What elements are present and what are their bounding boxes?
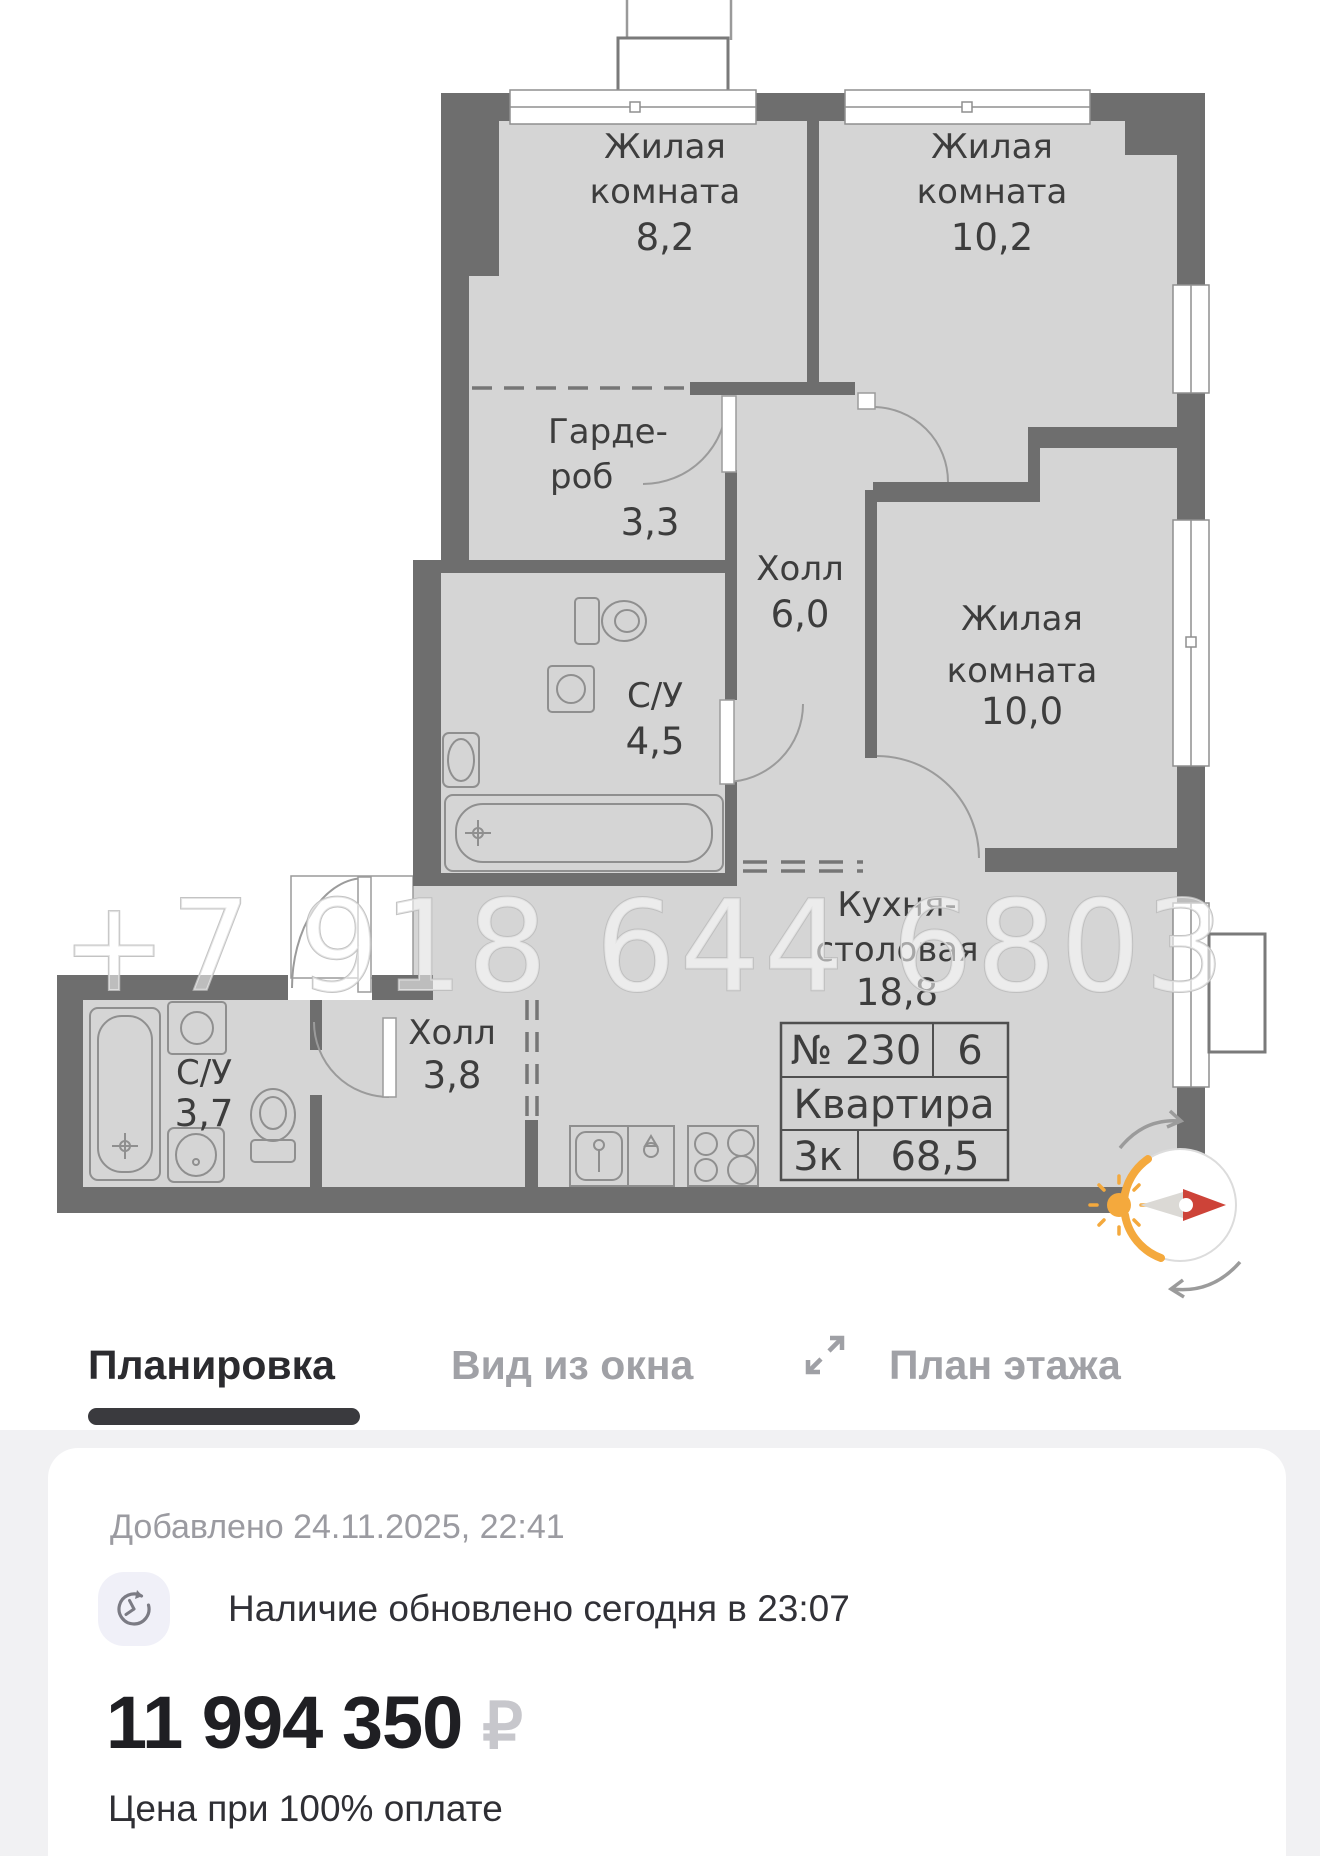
svg-text:комната: комната [947,651,1098,691]
room-label-bath-45: С/У 4,5 [626,676,685,763]
svg-text:8,2: 8,2 [636,216,695,259]
active-tab-underline [88,1408,360,1425]
svg-text:комната: комната [590,172,741,212]
svg-text:4,5: 4,5 [626,720,685,763]
svg-text:6,0: 6,0 [771,593,830,636]
listing-page: Жилая комната 8,2 Жилая комната 10,2 Гар… [0,0,1320,1856]
svg-text:3к: 3к [793,1134,843,1180]
tab-floor-plan[interactable]: План этажа [889,1342,1121,1389]
availability-row: Наличие обновлено сегодня в 23:07 [98,1572,850,1646]
svg-text:Жилая: Жилая [961,599,1083,639]
svg-text:68,5: 68,5 [890,1134,979,1180]
svg-text:10,2: 10,2 [951,216,1033,259]
price-note: Цена при 100% оплате [108,1788,503,1830]
svg-text:роб: роб [550,457,613,497]
room-label-bath-37: С/У 3,7 [175,1053,234,1135]
tab-window-view[interactable]: Вид из окна [451,1342,693,1389]
clock-badge [98,1572,170,1646]
svg-text:3,7: 3,7 [175,1092,234,1135]
tab-layout[interactable]: Планировка [88,1342,335,1389]
svg-text:№ 230: № 230 [791,1028,922,1074]
svg-text:Гарде-: Гарде- [548,412,668,452]
svg-text:комната: комната [917,172,1068,212]
clock-refresh-icon [112,1587,156,1631]
watermark-phone: +7 918 644 6803 [61,873,1229,1020]
sun-icon [1090,1176,1148,1234]
availability-text: Наличие обновлено сегодня в 23:07 [228,1588,850,1630]
price-row: 11 994 350 ₽ [106,1686,523,1760]
svg-text:Жилая: Жилая [604,127,726,167]
added-date: Добавлено 24.11.2025, 22:41 [110,1508,565,1547]
floor-plan-image: Жилая комната 8,2 Жилая комната 10,2 Гар… [0,0,1320,1320]
svg-text:6: 6 [957,1028,982,1074]
price-card: Добавлено 24.11.2025, 22:41 Наличие обно… [48,1448,1286,1856]
expand-icon[interactable] [796,1326,854,1384]
svg-text:3,3: 3,3 [621,501,680,544]
balcony-box-top [618,38,728,95]
svg-text:Квартира: Квартира [793,1082,994,1128]
svg-text:С/У: С/У [627,676,683,716]
view-tabs: Планировка Вид из окна План этажа [0,1330,1320,1430]
svg-text:10,0: 10,0 [981,690,1063,733]
details-panel: Добавлено 24.11.2025, 22:41 Наличие обно… [0,1430,1320,1856]
svg-text:Холл: Холл [756,549,844,589]
price-value: 11 994 350 [106,1686,462,1760]
svg-text:Жилая: Жилая [931,127,1053,167]
svg-text:3,8: 3,8 [423,1054,482,1097]
apartment-info-table: № 230 6 Квартира 3к 68,5 [781,1023,1008,1180]
svg-text:С/У: С/У [176,1053,232,1093]
ruble-sign: ₽ [482,1694,523,1760]
